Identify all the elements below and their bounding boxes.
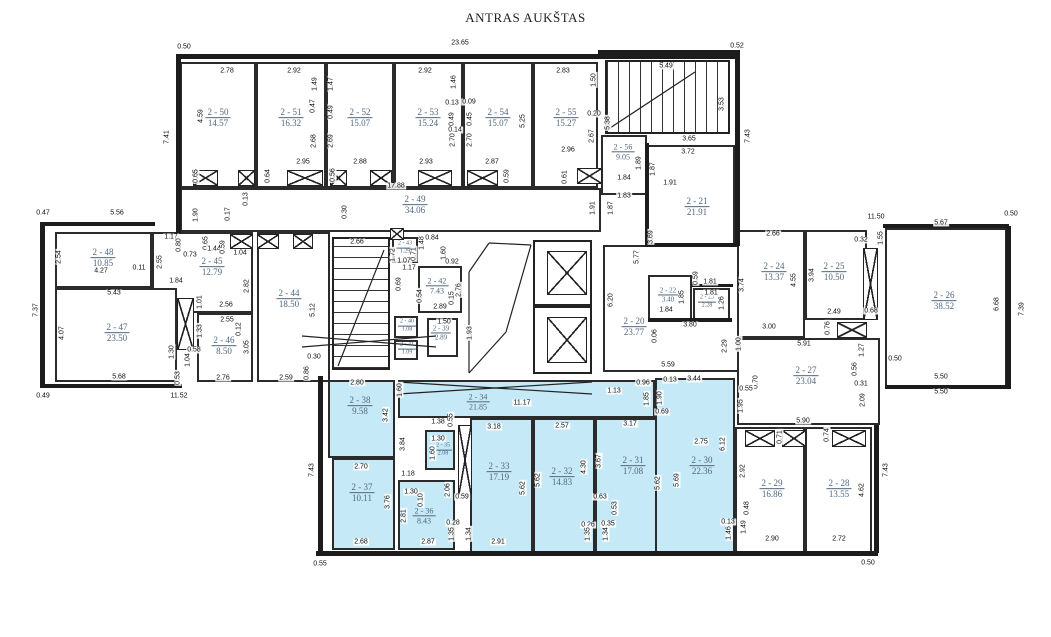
dimension-label: 0.17 [225, 206, 232, 222]
dimension-label: 1.01 [197, 294, 204, 310]
dimension-label: 2.56 [218, 302, 234, 309]
dimension-label: 0.31 [853, 381, 869, 388]
dimension-label: 0.68 [863, 308, 879, 315]
dimension-label: 5.43 [106, 290, 122, 297]
dimension-label: 2.70 [353, 464, 369, 471]
room-label-2-55: 2 - 5515.27 [554, 107, 579, 129]
room-label-2-53: 2 - 5315.24 [416, 107, 441, 129]
dimension-label: 2.87 [420, 539, 436, 546]
dimension-label: 1.84 [168, 278, 184, 285]
dimension-label: 0.32 [853, 237, 869, 244]
dimension-label: 4.62 [859, 482, 866, 498]
room-label-2-48: 2 - 4810.85 [91, 247, 116, 269]
dimension-label: 5.68 [111, 374, 127, 381]
dimension-label: 3.94 [809, 267, 816, 283]
crossed-shaft-symbol [547, 251, 587, 295]
dimension-label: 5.59 [660, 362, 676, 369]
dimension-label: 0.63 [592, 494, 608, 501]
dimension-label: 0.84 [424, 235, 440, 242]
dimension-label: 1.81 [702, 279, 718, 286]
floor-plan: ANTRAS AUKŠTAS 2 - 5014.572 - 5116.322 -… [0, 0, 1051, 637]
dimension-label: 5.62 [520, 480, 527, 496]
dimension-label: 1.50 [436, 319, 452, 326]
crossed-shaft-symbol [745, 430, 775, 447]
dimension-label: 0.59 [693, 270, 700, 286]
dimension-label: 2.49 [826, 309, 842, 316]
dimension-label: 2.66 [765, 231, 781, 238]
dimension-label: 3.44 [686, 376, 702, 383]
dimension-label: 2.95 [295, 159, 311, 166]
dimension-label: 1.87 [608, 200, 615, 216]
dimension-label: 2.68 [311, 133, 318, 149]
wall-segment [40, 222, 45, 388]
dimension-label: 2.81 [401, 508, 408, 524]
dimension-label: 0.13 [243, 191, 250, 207]
dimension-label: 2.70 [467, 132, 474, 148]
dimension-label: 1.48 [419, 235, 426, 251]
room-label-2-40: 2 - 401.08 [398, 319, 416, 334]
dimension-label: 2.76 [456, 282, 463, 298]
dimension-label: 2.75 [693, 439, 709, 446]
wall-segment [1006, 226, 1011, 389]
dimension-label: 2.92 [286, 68, 302, 75]
dimension-label: 0.59 [504, 168, 511, 184]
dimension-label: 1.93 [467, 325, 474, 341]
dimension-label: 2.92 [740, 463, 747, 479]
dimension-label: 6.68 [994, 296, 1001, 312]
dimension-label: 1.85 [644, 391, 651, 407]
crossed-shaft-symbol [287, 170, 323, 186]
dimension-label: 1.26 [719, 295, 726, 311]
dimension-label: 2.80 [349, 380, 365, 387]
dimension-label: 2.55 [157, 254, 164, 270]
dimension-label: 0.71 [777, 429, 784, 445]
dimension-label: 1.30 [403, 489, 419, 496]
dimension-label: 0.47 [35, 210, 51, 217]
dimension-label: 0.11 [131, 265, 146, 272]
room-label-2-27: 2 - 2723.04 [794, 365, 819, 387]
room-label-2-37: 2 - 3710.11 [350, 482, 375, 504]
dimension-label: 1.95 [738, 398, 745, 414]
wall-segment [735, 50, 740, 246]
dimension-label: 1.49 [741, 519, 748, 535]
dimension-label: 1.46 [726, 525, 733, 541]
dimension-label: 1.50 [591, 72, 598, 88]
dimension-label: 0.53 [175, 370, 182, 386]
dimension-label: 5.69 [674, 472, 681, 488]
dimension-label: 7.39 [1019, 301, 1026, 317]
dimension-label: 0.64 [265, 168, 272, 184]
crossed-shaft-symbol [238, 170, 255, 186]
dimension-label: 0.45 [467, 111, 474, 127]
room-label-2-24: 2 - 2413.37 [762, 261, 787, 283]
dimension-label: 0.69 [396, 276, 403, 292]
dimension-label: 5.67 [933, 220, 949, 227]
dimension-label: 1.85 [679, 289, 686, 305]
dimension-label: 1.55 [878, 230, 885, 246]
dimension-label: 5.62 [535, 472, 542, 488]
room-label-2-23: 2 - 232.28 [698, 295, 716, 310]
dimension-label: 1.30 [430, 436, 446, 443]
dimension-label: 1.84 [658, 307, 674, 314]
dimension-label: 0.10 [418, 492, 425, 508]
dimension-label: 2.78 [219, 68, 235, 75]
dimension-label: 0.09 [461, 99, 477, 106]
dimension-label: 2.09 [860, 392, 867, 408]
crossed-shaft-symbol [257, 234, 279, 249]
wall-segment [40, 222, 155, 226]
room-label-2-41: 2 - 411.09 [398, 342, 416, 357]
dimension-label: 1.84 [616, 175, 632, 182]
dimension-label: 0.49 [449, 111, 456, 127]
dimension-label: 5.50 [933, 389, 949, 396]
dimension-label: 1.90 [657, 390, 664, 406]
dimension-label: 0.50 [1003, 211, 1019, 218]
dimension-label: 23.65 [450, 40, 470, 47]
dimension-label: 0.49 [328, 104, 335, 120]
dimension-label: 5.38 [605, 115, 612, 131]
room-label-2-42: 2 - 427.43 [426, 276, 449, 295]
dimension-label: 5.90 [795, 418, 811, 425]
dimension-label: 0.92 [444, 259, 460, 266]
room-label-2-36: 2 - 368.43 [413, 506, 436, 525]
dimension-label: 1.49 [312, 76, 319, 92]
dimension-label: 0.59 [454, 494, 470, 501]
dimension-label: 1.83 [616, 193, 632, 200]
room-label-2-45: 2 - 4512.79 [200, 256, 225, 278]
dimension-label: 2.72 [831, 536, 847, 543]
wall-segment [645, 243, 737, 247]
crossed-shaft-symbol [458, 425, 472, 495]
wall-segment [40, 384, 182, 388]
dimension-label: 1.18 [400, 471, 416, 478]
crossed-shaft-symbol [177, 298, 194, 350]
room-label-2-49: 2 - 4934.06 [403, 194, 428, 216]
dimension-label: 3.67 [596, 453, 603, 469]
dimension-label: 0.47 [310, 98, 317, 114]
dimension-label: 0.69 [654, 409, 670, 416]
dimension-label: 5.77 [634, 249, 641, 265]
crossed-shaft-symbol [837, 322, 867, 338]
dimension-label: 0.56 [330, 167, 337, 183]
dimension-label: 1.30 [169, 344, 176, 360]
dimension-label: 0.80 [176, 237, 183, 253]
dimension-label: 2.82 [244, 278, 251, 294]
dimension-label: 1.33 [197, 323, 204, 339]
dimension-label: 11.52 [170, 393, 189, 400]
room-label-2-56: 2 - 569.05 [612, 142, 635, 161]
dimension-label: 1.04 [232, 250, 248, 257]
dimension-label: 2.90 [764, 536, 780, 543]
wall-segment [318, 376, 323, 555]
dimension-label: 0.30 [342, 204, 349, 220]
dimension-label: 3.72 [680, 149, 696, 156]
room-2-21 [647, 145, 735, 245]
dimension-label: 2.68 [353, 539, 369, 546]
dimension-label: 2.55 [219, 317, 235, 324]
room-label-2-46: 2 - 468.50 [212, 335, 237, 357]
room-label-2-29: 2 - 2916.86 [760, 478, 785, 500]
dimension-label: 2.96 [560, 147, 576, 154]
dimension-label: 1.35 [585, 526, 592, 542]
dimension-label: 5.49 [658, 63, 674, 70]
dimension-label: 1.34 [603, 526, 610, 542]
crossed-shaft-symbol [390, 228, 404, 240]
dimension-label: 0.48 [744, 500, 751, 516]
room-label-2-50: 2 - 5014.57 [206, 107, 231, 129]
dimension-label: 3.00 [761, 324, 777, 331]
dimension-label: 0.73 [182, 252, 198, 259]
dimension-label: 1.89 [636, 155, 643, 171]
dimension-label: 0.50 [860, 560, 876, 567]
wall-segment [176, 54, 740, 59]
dimension-label: 1.60 [397, 382, 404, 398]
crossed-shaft-symbol [782, 430, 806, 447]
dimension-label: 0.13 [662, 377, 678, 384]
dimension-label: 0.50 [176, 44, 192, 51]
dimension-label: 3.05 [244, 339, 251, 355]
crossed-shaft-symbol [230, 234, 253, 249]
dimension-label: 11.50 [867, 214, 886, 221]
dimension-label: 6.12 [720, 436, 727, 452]
dimension-label: 11.17 [513, 400, 532, 407]
dimension-label: 1.47 [328, 76, 335, 92]
dimension-label: 0.13 [444, 100, 460, 107]
dimension-label: 1.27 [859, 342, 866, 358]
wall-segment [316, 551, 878, 556]
crossed-shaft-symbol [467, 170, 498, 186]
dimension-label: 0.06 [652, 328, 659, 344]
dimension-label: 7.43 [745, 128, 752, 144]
dimension-label: 3.18 [486, 424, 502, 431]
crossed-shaft-symbol [577, 168, 602, 184]
dimension-label: 1.00 [736, 336, 743, 352]
crossed-shaft-symbol [418, 170, 452, 186]
dimension-label: 1.72 [390, 247, 397, 263]
room-label-2-44: 2 - 4418.50 [277, 288, 302, 310]
dimension-label: 1.60 [430, 445, 437, 461]
dimension-label: 2.06 [445, 482, 452, 498]
dimension-label: 0.50 [887, 356, 903, 363]
dimension-label: 7.41 [164, 129, 171, 145]
dimension-label: 6.20 [608, 292, 615, 308]
dimension-label: 1.90 [193, 207, 200, 223]
crossed-shaft-symbol [547, 317, 587, 363]
dimension-label: 0.55 [312, 561, 328, 568]
dimension-label: 1.81 [703, 290, 719, 297]
dimension-label: 4.59 [198, 108, 205, 124]
dimension-label: 0.54 [417, 288, 424, 304]
dimension-label: 2.76 [215, 375, 231, 382]
room-label-2-26: 2 - 2638.52 [932, 290, 957, 312]
dimension-label: 2.69 [328, 133, 335, 149]
room-label-2-39: 2 - 392.89 [431, 324, 451, 341]
crossed-shaft-symbol [293, 234, 313, 249]
room-label-2-28: 2 - 2813.55 [827, 478, 852, 500]
dimension-label: 0.61 [562, 169, 569, 185]
crossed-shaft-symbol [832, 430, 866, 447]
room-label-2-25: 2 - 2510.50 [822, 261, 847, 283]
dimension-label: 2.92 [417, 68, 433, 75]
dimension-label: 3.53 [719, 96, 726, 112]
room-label-2-22: 2 - 223.40 [658, 286, 678, 303]
dimension-label: 7.43 [309, 462, 316, 478]
wall-segment [598, 50, 738, 54]
dimension-label: 2.59 [278, 375, 294, 382]
room-label-2-52: 2 - 5215.07 [348, 107, 373, 129]
dimension-label: 3.65 [681, 136, 697, 143]
dimension-label: 2.66 [349, 239, 365, 246]
dimension-label: 3.69 [648, 229, 655, 245]
dimension-label: 0.55 [448, 412, 455, 428]
room-label-2-31: 2 - 3117.08 [621, 455, 646, 477]
dimension-label: 0.52 [729, 43, 745, 50]
dimension-label: 4.07 [59, 325, 66, 341]
dimension-label: 3.80 [682, 322, 698, 329]
room-label-2-51: 2 - 5116.32 [279, 107, 304, 129]
dimension-label: 2.89 [432, 304, 448, 311]
dimension-label: 0.53 [612, 500, 619, 516]
dimension-label: 0.71 [411, 246, 418, 262]
dimension-label: 5.25 [520, 113, 527, 129]
dimension-label: 4.55 [791, 272, 798, 288]
room-label-2-30: 2 - 3022.36 [690, 455, 715, 477]
room-label-2-32: 2 - 3214.83 [550, 466, 575, 488]
dimension-label: 0.56 [852, 361, 859, 377]
room-label-2-38: 2 - 389.58 [348, 395, 373, 417]
dimension-label: 5.56 [109, 210, 125, 217]
dimension-label: 2.91 [490, 539, 506, 546]
dimension-label: 0.15 [449, 290, 456, 306]
dimension-label: 0.65 [193, 168, 200, 184]
dimension-label: 2.57 [554, 423, 570, 430]
dimension-label: 1.38 [430, 419, 446, 426]
staircase [605, 60, 730, 134]
dimension-label: 1.91 [662, 180, 678, 187]
dimension-label: 0.86 [304, 365, 311, 381]
wall-segment [874, 425, 879, 553]
dimension-label: 7.43 [883, 462, 890, 478]
room-label-2-35: 2 - 352.08 [434, 443, 452, 458]
dimension-label: 1.35 [449, 526, 456, 542]
dimension-label: 0.49 [35, 393, 51, 400]
dimension-label: 0.58 [186, 347, 202, 354]
dimension-label: 1.46 [451, 74, 458, 90]
dimension-label: 3.74 [739, 277, 746, 293]
dimension-label: 0.59 [220, 239, 227, 255]
dimension-label: 2.93 [418, 159, 434, 166]
dimension-label: 2.70 [450, 132, 457, 148]
dimension-label: 3.76 [385, 494, 392, 510]
dimension-label: 7.37 [33, 302, 40, 318]
dimension-label: 1.07 [396, 258, 412, 265]
dimension-label: 17.88 [386, 183, 406, 190]
dimension-label: 0.12 [236, 321, 243, 337]
dimension-label: 4.30 [581, 459, 588, 475]
dimension-label: 2.67 [589, 128, 596, 144]
dimension-label: 3.42 [383, 407, 390, 423]
dimension-label: 1.34 [466, 526, 473, 542]
dimension-label: 5.91 [796, 341, 812, 348]
dimension-label: 0.96 [635, 380, 651, 387]
dimension-label: 0.20 [586, 111, 602, 118]
dimension-label: 3.84 [400, 436, 407, 452]
dimension-label: 2.83 [555, 68, 571, 75]
dimension-label: 2.87 [484, 159, 500, 166]
dimension-label: 0.74 [824, 427, 831, 443]
dimension-label: 5.12 [310, 302, 317, 318]
dimension-label: 5.50 [933, 374, 949, 381]
dimension-label: 5.62 [655, 475, 662, 491]
dimension-label: 1.04 [185, 352, 192, 368]
dimension-label: 1.13 [606, 388, 622, 395]
dimension-label: 1.17 [401, 265, 417, 272]
room-label-2-47: 2 - 4723.50 [105, 322, 130, 344]
dimension-label: 1.87 [650, 161, 657, 177]
staircase [332, 237, 390, 370]
dimension-label: 2.29 [722, 338, 729, 354]
dimension-label: 4.27 [93, 268, 109, 275]
page-title: ANTRAS AUKŠTAS [0, 10, 1051, 26]
room-label-2-20: 2 - 2023.77 [622, 316, 647, 338]
wall-segment [176, 54, 181, 234]
dimension-label: 2.54 [56, 249, 63, 265]
dimension-label: 0.30 [306, 354, 322, 361]
dimension-label: 0.55 [738, 386, 754, 393]
room-label-2-33: 2 - 3317.19 [487, 461, 512, 483]
room-label-2-54: 2 - 5415.07 [486, 107, 511, 129]
dimension-label: 0.76 [825, 320, 832, 336]
dimension-label: 3.17 [622, 421, 638, 428]
dimension-label: 1.91 [590, 200, 597, 216]
dimension-label: 2.88 [352, 159, 368, 166]
room-label-2-34: 2 - 3421.85 [467, 392, 490, 411]
room-label-2-21: 2 - 2121.91 [685, 196, 710, 218]
